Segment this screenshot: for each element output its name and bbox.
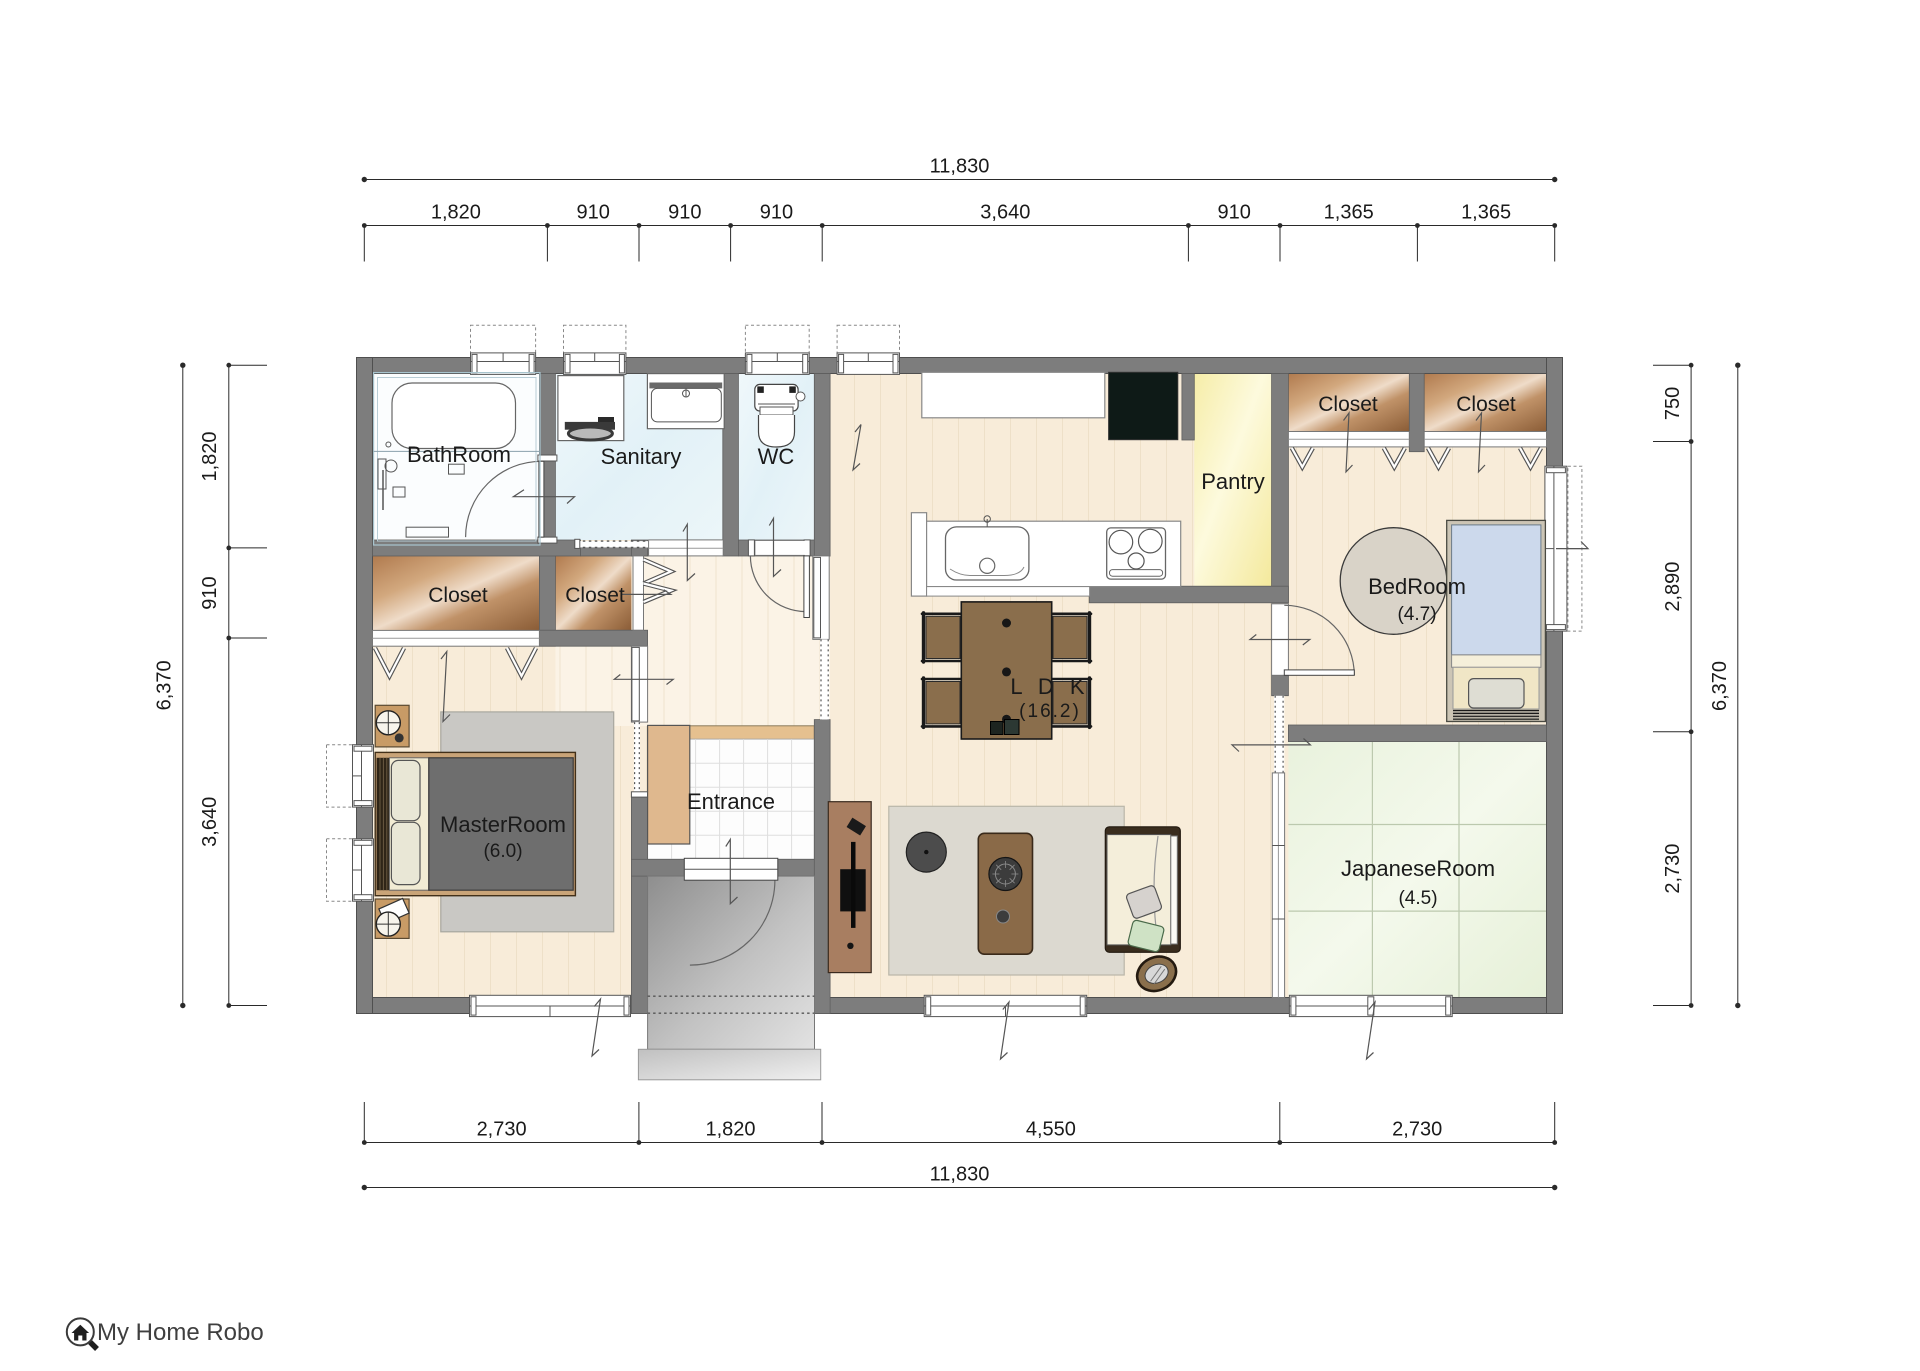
svg-text:MasterRoom: MasterRoom — [440, 812, 566, 837]
svg-text:6,370: 6,370 — [1709, 661, 1731, 711]
svg-text:750: 750 — [1662, 387, 1684, 420]
svg-text:My Home Robo: My Home Robo — [97, 1319, 264, 1346]
svg-text:BathRoom: BathRoom — [407, 442, 511, 467]
svg-text:910: 910 — [760, 202, 793, 224]
svg-text:1,820: 1,820 — [431, 202, 481, 224]
svg-text:2,730: 2,730 — [477, 1119, 527, 1141]
svg-text:BedRoom: BedRoom — [1368, 574, 1466, 599]
svg-text:2,730: 2,730 — [1662, 844, 1684, 894]
svg-text:3,640: 3,640 — [199, 797, 221, 847]
svg-text:3,640: 3,640 — [980, 202, 1030, 224]
svg-text:WC: WC — [758, 444, 795, 469]
svg-text:1,365: 1,365 — [1461, 202, 1511, 224]
svg-text:2,730: 2,730 — [1392, 1119, 1442, 1141]
svg-text:(4.5): (4.5) — [1398, 888, 1437, 909]
svg-text:11,830: 11,830 — [930, 156, 990, 178]
svg-text:L D K: L D K — [1010, 674, 1089, 699]
svg-text:Closet: Closet — [565, 584, 625, 607]
svg-text:1,820: 1,820 — [199, 431, 221, 481]
svg-text:4,550: 4,550 — [1026, 1119, 1076, 1141]
svg-text:(16.2): (16.2) — [1019, 701, 1081, 722]
svg-text:Closet: Closet — [1456, 393, 1516, 416]
svg-text:(4.7): (4.7) — [1397, 604, 1436, 625]
svg-text:2,890: 2,890 — [1662, 562, 1684, 612]
svg-text:Pantry: Pantry — [1201, 469, 1265, 494]
svg-text:(6.0): (6.0) — [483, 841, 522, 862]
svg-text:11,830: 11,830 — [930, 1164, 990, 1186]
svg-text:910: 910 — [668, 202, 701, 224]
svg-text:6,370: 6,370 — [153, 660, 175, 710]
svg-text:Sanitary: Sanitary — [601, 444, 682, 469]
svg-text:Closet: Closet — [428, 584, 488, 607]
svg-text:Closet: Closet — [1318, 393, 1378, 416]
svg-text:910: 910 — [577, 202, 610, 224]
svg-text:JapaneseRoom: JapaneseRoom — [1341, 856, 1495, 881]
svg-text:1,365: 1,365 — [1324, 202, 1374, 224]
svg-text:910: 910 — [199, 576, 221, 609]
svg-text:1,820: 1,820 — [705, 1119, 755, 1141]
svg-text:910: 910 — [1218, 202, 1251, 224]
svg-text:Entrance: Entrance — [687, 789, 775, 814]
